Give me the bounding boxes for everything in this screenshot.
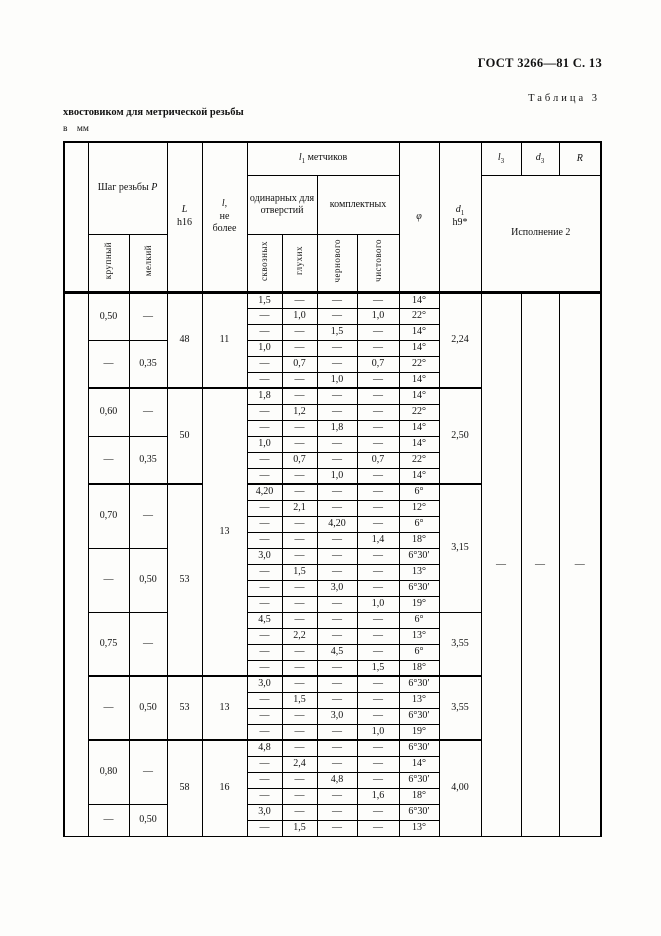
phi-value-cell: 13° — [399, 628, 439, 644]
d1-tolerance: h9* — [440, 217, 481, 230]
phi-value-cell: 13° — [399, 692, 439, 708]
rough-value-cell: — — [317, 356, 357, 372]
phi-value-cell: 6°30′ — [399, 740, 439, 756]
blind-value-cell: 2,4 — [282, 756, 317, 772]
pitch-fine-cell: — — [129, 740, 167, 804]
blind-value-cell: — — [282, 580, 317, 596]
finish-value-cell: — — [357, 372, 399, 388]
finish-value-cell: 0,7 — [357, 356, 399, 372]
through-value-cell: — — [247, 596, 282, 612]
pitch-fine-cell: 0,50 — [129, 676, 167, 740]
blind-value-cell: — — [282, 340, 317, 356]
finish-value-cell: — — [357, 436, 399, 452]
rough-tap-header: чернового — [317, 234, 357, 292]
L-value-cell: 58 — [167, 740, 202, 836]
table-caption: Таблица 3 — [528, 93, 600, 104]
finish-value-cell: — — [357, 548, 399, 564]
blind-value-cell: 1,0 — [282, 308, 317, 324]
L-value-cell: 48 — [167, 292, 202, 388]
finish-value-cell: 1,5 — [357, 660, 399, 676]
l-column-header: l, не более — [202, 142, 247, 292]
blind-value-cell: — — [282, 484, 317, 500]
blind-value-cell: — — [282, 516, 317, 532]
blind-value-cell: — — [282, 420, 317, 436]
rough-value-cell: — — [317, 308, 357, 324]
phi-value-cell: 22° — [399, 308, 439, 324]
rough-value-cell: — — [317, 676, 357, 692]
table-row: 0,50—48111,5———14°2,24——— — [64, 292, 601, 308]
finish-value-cell: — — [357, 340, 399, 356]
l3-value-cell: — — [481, 292, 521, 836]
through-value-cell: — — [247, 820, 282, 836]
phi-value-cell: 22° — [399, 452, 439, 468]
rough-value-cell: — — [317, 740, 357, 756]
through-value-cell: — — [247, 372, 282, 388]
R-variable: R — [577, 153, 583, 164]
through-value-cell: 4,5 — [247, 612, 282, 628]
phi-value-cell: 6° — [399, 516, 439, 532]
blind-value-cell: — — [282, 724, 317, 740]
rough-value-cell: 3,0 — [317, 580, 357, 596]
finish-value-cell: — — [357, 420, 399, 436]
rough-value-cell: 4,8 — [317, 772, 357, 788]
L-column-header: L h16 — [167, 142, 202, 292]
rough-value-cell: 1,8 — [317, 420, 357, 436]
phi-value-cell: 13° — [399, 820, 439, 836]
phi-value-cell: 6°30′ — [399, 580, 439, 596]
finish-value-cell: — — [357, 612, 399, 628]
rough-value-cell: — — [317, 788, 357, 804]
l1-subscript: 1 — [302, 157, 306, 165]
d3-column-header: d3 — [521, 142, 559, 175]
blind-value-cell: — — [282, 740, 317, 756]
pitch-fine-cell: — — [129, 292, 167, 340]
rough-value-cell: — — [317, 484, 357, 500]
pitch-coarse-cell: — — [88, 548, 129, 612]
through-value-cell: — — [247, 772, 282, 788]
blind-value-cell: 1,5 — [282, 564, 317, 580]
finish-value-cell: — — [357, 292, 399, 308]
rough-value-cell: — — [317, 500, 357, 516]
pitch-group-header: Шаг резьбы P — [88, 142, 167, 234]
finish-value-cell: — — [357, 708, 399, 724]
blind-value-cell: — — [282, 676, 317, 692]
phi-value-cell: 18° — [399, 660, 439, 676]
L-value-cell: 50 — [167, 388, 202, 484]
finish-value-cell: 1,4 — [357, 532, 399, 548]
through-value-cell: — — [247, 500, 282, 516]
L-value-cell: 53 — [167, 676, 202, 740]
finish-value-cell: 1,0 — [357, 596, 399, 612]
finish-value-cell: — — [357, 628, 399, 644]
through-value-cell: 1,0 — [247, 436, 282, 452]
finish-value-cell: — — [357, 404, 399, 420]
phi-value-cell: 14° — [399, 468, 439, 484]
pitch-coarse-cell: — — [88, 436, 129, 484]
through-value-cell: — — [247, 420, 282, 436]
rough-value-cell: 4,5 — [317, 644, 357, 660]
phi-value-cell: 14° — [399, 756, 439, 772]
doc-reference: ГОСТ 3266—81 С. 13 — [478, 56, 602, 71]
rough-value-cell: — — [317, 628, 357, 644]
rough-value-cell: — — [317, 404, 357, 420]
l1-group-label: метчиков — [308, 152, 348, 163]
phi-value-cell: 6°30′ — [399, 708, 439, 724]
phi-value-cell: 12° — [399, 500, 439, 516]
blind-value-cell: — — [282, 788, 317, 804]
rough-value-cell: — — [317, 660, 357, 676]
finish-value-cell: — — [357, 676, 399, 692]
through-value-cell: — — [247, 532, 282, 548]
table-header: Шаг резьбы P L h16 l, не более l1 метчик… — [64, 142, 601, 292]
pitch-coarse-cell: — — [88, 804, 129, 836]
through-value-cell: 1,0 — [247, 340, 282, 356]
l3-column-header: l3 — [481, 142, 521, 175]
pitch-fine-cell: 0,35 — [129, 436, 167, 484]
pitch-fine-cell: 0,50 — [129, 804, 167, 836]
rough-value-cell: — — [317, 756, 357, 772]
blind-value-cell: — — [282, 644, 317, 660]
R-value-cell: — — [559, 292, 601, 836]
pitch-coarse-header: крупный — [88, 234, 129, 292]
blind-value-cell: — — [282, 708, 317, 724]
phi-value-cell: 6° — [399, 644, 439, 660]
blind-value-cell: 1,5 — [282, 692, 317, 708]
blind-value-cell: — — [282, 612, 317, 628]
through-value-cell: — — [247, 516, 282, 532]
phi-value-cell: 18° — [399, 532, 439, 548]
through-value-cell: — — [247, 692, 282, 708]
finish-value-cell: — — [357, 580, 399, 596]
rough-value-cell: — — [317, 292, 357, 308]
header-row-1: Шаг резьбы P L h16 l, не более l1 метчик… — [64, 142, 601, 175]
phi-value-cell: 14° — [399, 324, 439, 340]
l-value-cell: 11 — [202, 292, 247, 388]
finish-value-cell: — — [357, 804, 399, 820]
table-continuation-title: хвостовиком для метрической резьбы — [63, 107, 244, 118]
pitch-coarse-cell: 0,60 — [88, 388, 129, 436]
d1-value-cell: 2,50 — [439, 388, 481, 484]
blind-value-cell: — — [282, 804, 317, 820]
rough-value-cell: — — [317, 724, 357, 740]
finish-value-cell: — — [357, 820, 399, 836]
L-value-cell: 53 — [167, 484, 202, 676]
through-value-cell: — — [247, 308, 282, 324]
rough-value-cell: — — [317, 388, 357, 404]
pitch-fine-cell: — — [129, 484, 167, 548]
l3-subscript: 3 — [501, 157, 505, 165]
through-value-cell: 1,8 — [247, 388, 282, 404]
through-value-cell: 1,5 — [247, 292, 282, 308]
rough-value-cell: — — [317, 596, 357, 612]
finish-value-cell: — — [357, 388, 399, 404]
blind-holes-header: глухих — [282, 234, 317, 292]
phi-symbol: φ — [416, 211, 422, 222]
l-variable: l, — [222, 198, 227, 209]
pitch-coarse-cell: 0,70 — [88, 484, 129, 548]
d1-value-cell: 3,55 — [439, 676, 481, 740]
d1-value-cell: 3,15 — [439, 484, 481, 612]
through-value-cell: — — [247, 404, 282, 420]
rough-value-cell: — — [317, 692, 357, 708]
phi-value-cell: 14° — [399, 388, 439, 404]
finish-value-cell: 1,6 — [357, 788, 399, 804]
through-value-cell: — — [247, 356, 282, 372]
blind-value-cell: — — [282, 468, 317, 484]
finish-value-cell: 1,0 — [357, 724, 399, 740]
pitch-coarse-cell: 0,75 — [88, 612, 129, 676]
through-value-cell: — — [247, 644, 282, 660]
l-value-cell: 13 — [202, 676, 247, 740]
l-value-cell: 16 — [202, 740, 247, 836]
phi-value-cell: 14° — [399, 436, 439, 452]
phi-value-cell: 6°30′ — [399, 548, 439, 564]
blind-value-cell: 2,1 — [282, 500, 317, 516]
ispolnenie-header: Исполнение 2 — [481, 175, 601, 292]
l-note-line1: не — [203, 211, 247, 224]
pitch-coarse-cell: — — [88, 340, 129, 388]
through-value-cell: 3,0 — [247, 676, 282, 692]
l1-taps-group-header: l1 метчиков — [247, 142, 399, 175]
rough-value-cell: — — [317, 564, 357, 580]
d3-subscript: 3 — [541, 157, 545, 165]
finish-value-cell: — — [357, 564, 399, 580]
rough-value-cell: — — [317, 340, 357, 356]
rough-value-cell: 1,5 — [317, 324, 357, 340]
phi-value-cell: 22° — [399, 356, 439, 372]
finish-value-cell: — — [357, 516, 399, 532]
pitch-fine-cell: — — [129, 388, 167, 436]
phi-value-cell: 6°30′ — [399, 772, 439, 788]
phi-value-cell: 19° — [399, 596, 439, 612]
through-value-cell: — — [247, 708, 282, 724]
rough-value-cell: — — [317, 436, 357, 452]
finish-value-cell: — — [357, 468, 399, 484]
blind-value-cell: — — [282, 388, 317, 404]
blind-value-cell: — — [282, 660, 317, 676]
phi-value-cell: 18° — [399, 788, 439, 804]
pitch-coarse-cell: 0,80 — [88, 740, 129, 804]
pitch-fine-cell: — — [129, 612, 167, 676]
set-taps-group-header: комплектных — [317, 175, 399, 234]
through-value-cell: — — [247, 660, 282, 676]
finish-value-cell: — — [357, 644, 399, 660]
rough-value-cell: — — [317, 804, 357, 820]
pitch-label: Шаг резьбы — [98, 182, 149, 193]
phi-value-cell: 14° — [399, 340, 439, 356]
table-body: 0,50—48111,5———14°2,24————1,0—1,022°——1,… — [64, 292, 601, 836]
phi-value-cell: 13° — [399, 564, 439, 580]
single-taps-group-header: одинарных для отверстий — [247, 175, 317, 234]
through-value-cell: — — [247, 628, 282, 644]
through-value-cell: 3,0 — [247, 548, 282, 564]
document-page: ГОСТ 3266—81 С. 13 Таблица 3 хвостовиком… — [0, 0, 661, 936]
d1-value-cell: 2,24 — [439, 292, 481, 388]
rough-value-cell: 4,20 — [317, 516, 357, 532]
pitch-fine-cell: 0,35 — [129, 340, 167, 388]
blind-value-cell: 1,2 — [282, 404, 317, 420]
pitch-coarse-cell: — — [88, 676, 129, 740]
d1-subscript: 1 — [461, 209, 465, 217]
blind-value-cell: — — [282, 324, 317, 340]
rough-value-cell: — — [317, 820, 357, 836]
through-value-cell: — — [247, 468, 282, 484]
through-value-cell: — — [247, 724, 282, 740]
phi-value-cell: 6° — [399, 484, 439, 500]
finish-value-cell: — — [357, 740, 399, 756]
phi-value-cell: 6°30′ — [399, 804, 439, 820]
phi-value-cell: 22° — [399, 404, 439, 420]
d1-column-header: d1 h9* — [439, 142, 481, 292]
L-tolerance: h16 — [168, 217, 202, 230]
rough-value-cell: — — [317, 452, 357, 468]
spacer-column-header — [64, 142, 88, 292]
rough-value-cell: — — [317, 548, 357, 564]
phi-value-cell: 6° — [399, 612, 439, 628]
through-value-cell: — — [247, 580, 282, 596]
d1-value-cell: 3,55 — [439, 612, 481, 676]
phi-value-cell: 6°30′ — [399, 676, 439, 692]
through-value-cell: 4,8 — [247, 740, 282, 756]
d1-value-cell: 4,00 — [439, 740, 481, 836]
pitch-variable: P — [151, 182, 157, 193]
l-note-line2: более — [203, 223, 247, 236]
rough-value-cell: — — [317, 532, 357, 548]
blind-value-cell: — — [282, 372, 317, 388]
through-value-cell: 4,20 — [247, 484, 282, 500]
finish-value-cell: — — [357, 772, 399, 788]
l-value-cell: 13 — [202, 388, 247, 676]
spacer-column-cell — [64, 292, 88, 836]
finish-value-cell: — — [357, 500, 399, 516]
blind-value-cell: — — [282, 292, 317, 308]
phi-value-cell: 14° — [399, 292, 439, 308]
blind-value-cell: — — [282, 772, 317, 788]
R-column-header: R — [559, 142, 601, 175]
blind-value-cell: 1,5 — [282, 820, 317, 836]
finish-value-cell: — — [357, 484, 399, 500]
rough-value-cell: 1,0 — [317, 468, 357, 484]
phi-value-cell: 19° — [399, 724, 439, 740]
finish-value-cell: — — [357, 692, 399, 708]
blind-value-cell: 2,2 — [282, 628, 317, 644]
blind-value-cell: — — [282, 436, 317, 452]
blind-value-cell: — — [282, 532, 317, 548]
through-value-cell: — — [247, 756, 282, 772]
taps-dimensions-table: Шаг резьбы P L h16 l, не более l1 метчик… — [63, 141, 602, 837]
phi-column-header: φ — [399, 142, 439, 292]
rough-value-cell: 3,0 — [317, 708, 357, 724]
through-value-cell: — — [247, 324, 282, 340]
through-value-cell: — — [247, 564, 282, 580]
pitch-coarse-cell: 0,50 — [88, 292, 129, 340]
finish-value-cell: 0,7 — [357, 452, 399, 468]
rough-value-cell: — — [317, 612, 357, 628]
finish-value-cell: — — [357, 324, 399, 340]
through-value-cell: 3,0 — [247, 804, 282, 820]
L-variable: L — [182, 204, 188, 215]
units-note: в мм — [63, 124, 89, 134]
blind-value-cell: — — [282, 596, 317, 612]
pitch-fine-header: мелкий — [129, 234, 167, 292]
through-value-cell: — — [247, 788, 282, 804]
blind-value-cell: 0,7 — [282, 452, 317, 468]
blind-value-cell: — — [282, 548, 317, 564]
d3-value-cell: — — [521, 292, 559, 836]
phi-value-cell: 14° — [399, 372, 439, 388]
pitch-fine-cell: 0,50 — [129, 548, 167, 612]
phi-value-cell: 14° — [399, 420, 439, 436]
through-holes-header: сквозных — [247, 234, 282, 292]
rough-value-cell: 1,0 — [317, 372, 357, 388]
finish-value-cell: 1,0 — [357, 308, 399, 324]
finish-value-cell: — — [357, 756, 399, 772]
finish-tap-header: чистового — [357, 234, 399, 292]
blind-value-cell: 0,7 — [282, 356, 317, 372]
through-value-cell: — — [247, 452, 282, 468]
